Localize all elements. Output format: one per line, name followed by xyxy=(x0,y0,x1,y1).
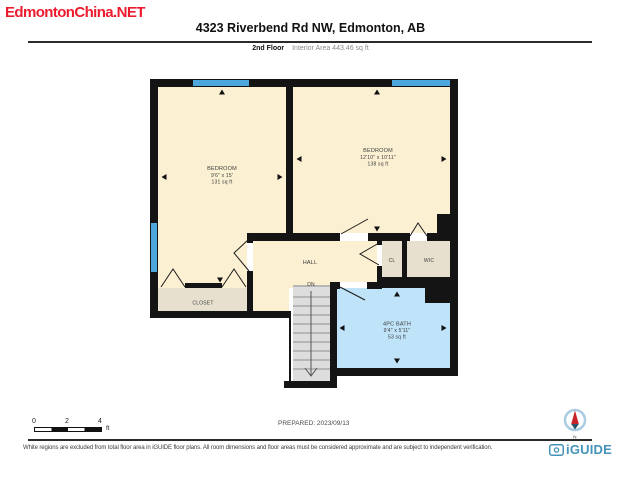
scale-bar-segments xyxy=(34,427,102,432)
iguide-wordmark: iGUIDE xyxy=(566,442,612,457)
scale-bar: 0 2 4 ft xyxy=(34,418,114,434)
hall-label: HALL xyxy=(303,260,318,266)
bedroom-left-dims: 9'6" x 15' xyxy=(211,173,233,179)
prepared-date: PREPARED: 2023/09/13 xyxy=(278,420,349,427)
wic-label: WIC xyxy=(424,258,435,264)
scale-tick-2: 2 xyxy=(65,418,69,425)
bedroom-left-area: 131 sq ft xyxy=(212,180,233,186)
floorplan-drawing: BEDROOM 9'6" x 15' 131 sq ft BEDROOM 12'… xyxy=(0,0,621,480)
scale-tick-4: 4 xyxy=(98,418,102,425)
bedroom-left-label: BEDROOM xyxy=(207,166,237,172)
bath-label: 4PC BATH xyxy=(383,322,411,328)
scale-tick-0: 0 xyxy=(32,418,36,425)
compass-icon: N xyxy=(565,410,585,440)
bedroom-right-area: 138 sq ft xyxy=(368,162,389,168)
closet-label: CLOSET xyxy=(192,301,213,307)
bedroom-right-dims: 12'10" x 10'11" xyxy=(360,155,396,161)
bath-dims: 9'4" x 5'11" xyxy=(384,328,411,334)
footer-divider xyxy=(28,439,592,441)
cl-label: CL xyxy=(389,258,396,264)
iguide-icon xyxy=(549,444,564,456)
scale-unit: ft xyxy=(106,425,110,432)
bath-area: 53 sq ft xyxy=(388,335,406,341)
stairs-label: DN xyxy=(307,282,315,288)
floorplan-page: { "watermark": { "text": "EdmontonChina.… xyxy=(0,0,621,480)
iguide-logo: iGUIDE xyxy=(549,442,612,457)
disclaimer-text: White regions are excluded from total fl… xyxy=(23,445,492,451)
bedroom-right-label: BEDROOM xyxy=(363,148,393,154)
